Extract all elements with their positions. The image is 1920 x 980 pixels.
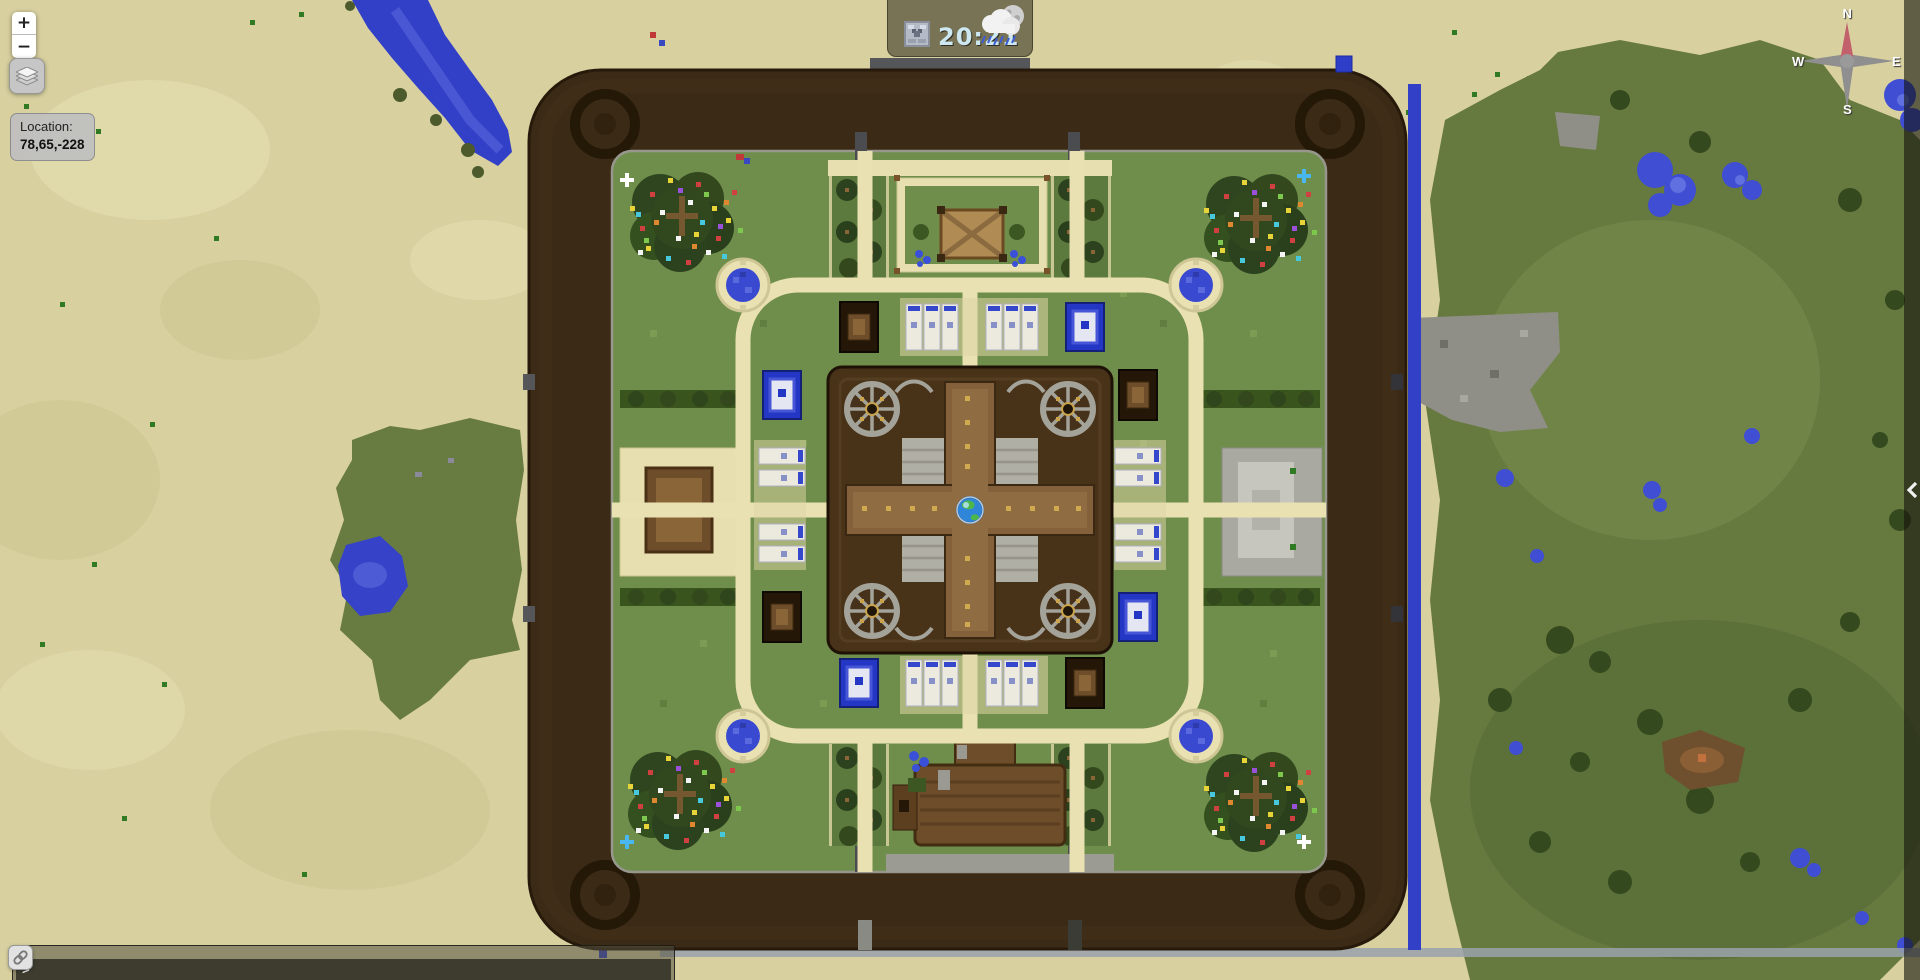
world-map[interactable] <box>0 0 1920 980</box>
chevron-left-icon <box>1906 482 1918 498</box>
clock-panel: 20:21 <box>887 0 1033 57</box>
layers-icon <box>16 67 38 86</box>
location-label: Location: <box>20 118 85 136</box>
layers-button[interactable] <box>9 58 45 94</box>
compass-north-label: N <box>1843 6 1852 21</box>
compass-south-label: S <box>1843 102 1852 116</box>
chat-input[interactable]: > <box>16 959 671 980</box>
forest <box>1408 40 1920 980</box>
central-cathedral <box>828 367 1112 653</box>
castle-complex <box>523 32 1406 950</box>
zoom-out-button[interactable]: − <box>12 35 36 58</box>
sidebar-toggle[interactable] <box>1904 0 1920 980</box>
compass-rose-icon: N W E S <box>1792 4 1902 116</box>
clock-icon <box>904 21 930 47</box>
compass-west-label: W <box>1792 54 1805 69</box>
dynmap-viewport: + − Location: 78,65,-228 20:21 N W <box>0 0 1920 980</box>
link-button[interactable] <box>8 945 33 970</box>
link-icon <box>12 949 29 966</box>
location-coordinates: 78,65,-228 <box>20 136 85 155</box>
moat <box>1408 84 1421 950</box>
zoom-in-button[interactable]: + <box>12 12 36 35</box>
location-panel: Location: 78,65,-228 <box>10 113 95 161</box>
chat-panel[interactable]: > <box>12 945 675 980</box>
spawn-globe-marker[interactable] <box>957 497 983 523</box>
zoom-control: + − <box>12 12 36 58</box>
weather-rain-moon-icon <box>977 2 1029 48</box>
compass-east-label: E <box>1892 54 1901 69</box>
